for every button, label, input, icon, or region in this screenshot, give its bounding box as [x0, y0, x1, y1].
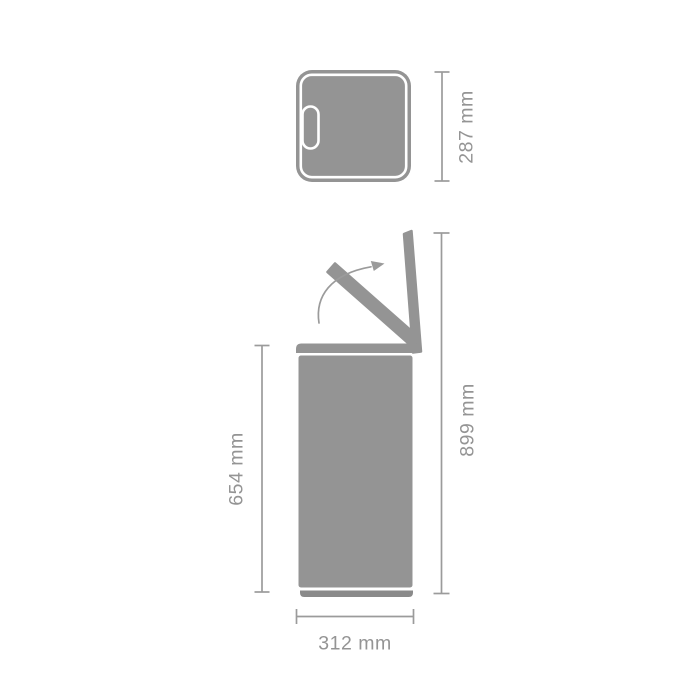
dimension-label-total-height: 899 mm: [457, 383, 480, 456]
dimension-line-top-depth: [435, 72, 450, 181]
product-dimension-diagram: 287 mm 654 mm 899 mm 312 mm: [0, 0, 700, 700]
lid-handle-icon: [303, 107, 319, 149]
side-view: [296, 231, 421, 597]
dimension-label-top-depth: 287 mm: [456, 90, 479, 163]
bin-rim: [296, 344, 420, 354]
dimension-drawing: [0, 0, 700, 700]
dimension-line-total-height: [434, 233, 450, 594]
dimension-line-body-height: [255, 346, 270, 593]
top-view: [296, 70, 411, 182]
lid-rotation-arrowhead-icon: [371, 261, 385, 271]
bin-base: [300, 591, 413, 598]
dimension-label-body-height: 654 mm: [226, 432, 249, 505]
dimension-label-width: 312 mm: [318, 632, 391, 655]
bin-body: [299, 356, 413, 588]
dimension-line-width: [297, 609, 414, 624]
lid-mid-position: [328, 264, 420, 347]
